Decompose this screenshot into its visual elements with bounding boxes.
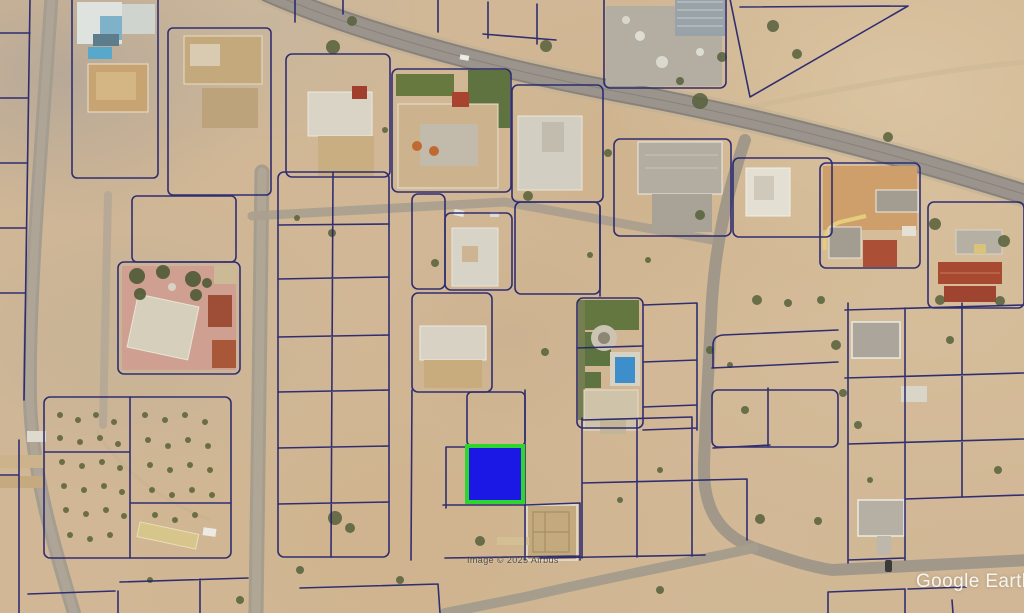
villa-compound-2 [184, 36, 262, 128]
swimming-pool [615, 357, 635, 383]
imagery-credit: Image © 2025 Airbus [467, 555, 559, 565]
villa-blue-roof [77, 2, 155, 112]
right-buildings [852, 322, 927, 555]
access-lane [103, 195, 108, 425]
concrete-pad [606, 0, 725, 86]
construction-building [497, 505, 577, 560]
compound-right [823, 166, 918, 267]
google-earth-watermark: Google Earth [916, 571, 1024, 593]
villa-red-roof [938, 230, 1002, 302]
selected-parcel[interactable] [467, 446, 523, 502]
central-buildings [420, 228, 498, 388]
courtyard-compound [122, 265, 236, 370]
map-overlay [0, 0, 1024, 613]
pool-compound [578, 300, 640, 434]
satellite-map-viewport[interactable]: Image © 2025 Airbus Google Earth [0, 0, 1024, 613]
